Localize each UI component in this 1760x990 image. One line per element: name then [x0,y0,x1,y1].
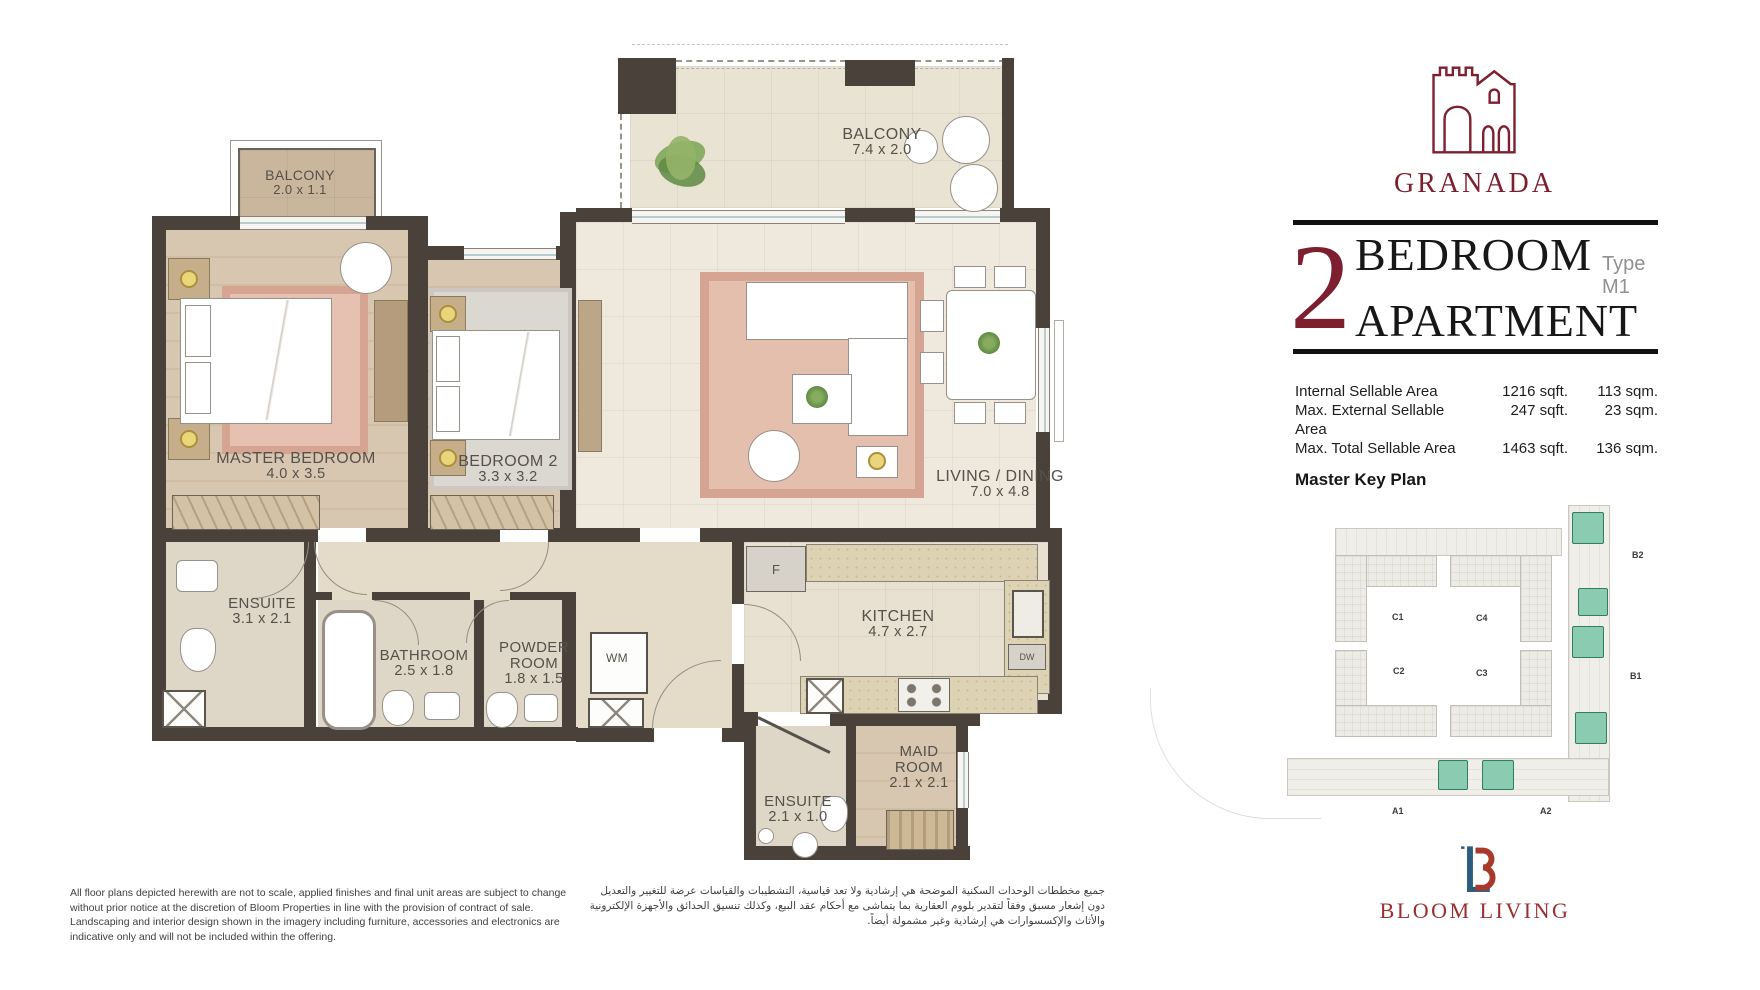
room-label-bathroom: BATHROOM 2.5 x 1.8 [344,648,504,680]
plant [978,332,1000,354]
kp-label-a2: A2 [1540,806,1552,816]
wall [576,728,654,742]
dining-chair [994,402,1026,424]
sofa-corner [848,338,908,436]
dishwasher-label: DW [1020,652,1035,662]
wall [510,592,576,600]
toilet [382,690,414,726]
kp-label-c3: C3 [1476,668,1488,678]
room-label-living-balcony: BALCONY 7.4 x 2.0 [792,126,972,159]
armchair [340,242,392,294]
bloom-monogram-icon [1452,843,1504,897]
balcony-rail [676,60,846,69]
kp-label-b1: B1 [1630,671,1642,681]
balcony-rail [620,114,628,208]
sink [424,692,460,720]
area-row: Max. Total Sellable Area 1463 sqft. 136 … [1295,439,1658,458]
kp-label-a1: A1 [1392,806,1404,816]
bed-throw [258,300,298,420]
bed-throw [500,332,540,436]
kp-label-c1: C1 [1392,612,1404,622]
dishwasher: DW [1008,644,1046,670]
kp-label-c4: C4 [1476,613,1488,623]
maid-bed [886,810,954,850]
shaft [588,698,644,728]
wall [744,726,756,858]
wall [846,726,856,852]
toilet [486,692,518,728]
bedroom2-window [464,248,556,260]
lamp [868,452,886,470]
dining-chair [954,402,986,424]
wall [152,216,240,230]
area-row: Internal Sellable Area 1216 sqft. 113 sq… [1295,382,1658,401]
dining-chair [994,266,1026,288]
area-row: Max. External Sellable Area 247 sqft. 23… [1295,401,1658,439]
balcony-pillar [1002,58,1014,212]
room-label-maid-ensuite: ENSUITE 2.1 x 1.0 [748,794,848,826]
dining-chair [920,300,944,332]
toilet [180,628,216,672]
kp-highlight-unit [1575,712,1607,744]
kp-highlight-unit [1572,626,1604,658]
wall [744,712,758,726]
key-plan: C1 C4 C2 C3 B2 B1 A1 A2 [1140,498,1760,828]
floor-plan: WM F DW BALCONY 2.0 x 1.1 BALCONY 7.4 x … [0,0,1140,990]
granada-logo [1428,60,1520,160]
dining-chair [954,266,986,288]
wall [1036,208,1050,328]
kp-building-c2 [1335,705,1437,737]
wall [548,528,560,542]
disclaimer-arabic: جميع مخططات الوحدات السكنية الموضحة هي إ… [588,884,1105,929]
wall [732,542,744,604]
fridge: F [746,546,806,592]
wall [700,528,732,542]
unit-title-line1: BEDROOM [1355,233,1592,277]
maid-window [957,752,969,808]
plant [806,386,828,408]
shower [162,690,206,728]
key-plan-title: Master Key Plan [1295,470,1426,490]
shower-drain [758,828,774,844]
master-wardrobe [374,300,408,422]
unit-type: Type M1 [1602,253,1658,299]
room-label-ensuite: ENSUITE 3.1 x 2.1 [182,596,342,628]
pillow [436,386,460,432]
unit-number: 2 [1290,237,1351,339]
stove [898,678,950,712]
pillow [436,336,460,382]
wardrobe-closet [172,495,320,530]
balcony-rail [915,60,1005,69]
brand-name: BLOOM LIVING [1315,898,1635,924]
lamp [180,430,198,448]
kp-building-c3 [1450,705,1552,737]
project-name: GRANADA [1293,168,1656,200]
road-curve [1150,688,1321,819]
kp-label-c2: C2 [1393,666,1405,676]
wall [732,664,744,728]
shaft [806,678,844,714]
unit-heading: 2 BEDROOM Type M1 APARTMENT [1290,232,1658,344]
kp-highlight-unit [1438,760,1468,790]
wall [372,592,470,600]
room-label-living-dining: LIVING / DINING 7.0 x 4.8 [890,468,1110,501]
room-label-master-bedroom: MASTER BEDROOM 4.0 x 3.5 [186,450,406,483]
wall [152,216,166,741]
room-label-kitchen: KITCHEN 4.7 x 2.7 [808,608,988,641]
wm-label: WM [590,652,644,665]
kp-label-b2: B2 [1632,550,1644,560]
area-table: Internal Sellable Area 1216 sqft. 113 sq… [1295,382,1658,458]
room-label-bedroom2: BEDROOM 2 3.3 x 3.2 [418,453,598,486]
tv-console [578,300,602,452]
sink [176,560,218,592]
wall [428,246,464,260]
wall [428,528,500,542]
balcony-sliding-door [632,210,845,224]
kp-highlight-unit [1578,588,1608,616]
sink [792,832,818,858]
wall [366,528,428,542]
info-panel: GRANADA 2 BEDROOM Type M1 APARTMENT Inte… [1140,0,1760,990]
balcony-pillar [618,58,676,114]
living-window [1038,328,1050,432]
castle-icon [1428,60,1520,160]
divider [1293,349,1658,354]
dimension-line [632,44,1008,47]
balcony-pillar [845,60,915,86]
wall [304,542,316,727]
sofa [746,282,908,340]
wall [845,208,915,222]
floorplan-sheet: { "plan": { "rooms": [ {"name": "BALCONY… [0,0,1760,990]
fridge-label: F [772,562,780,577]
kp-highlight-unit [1572,512,1604,544]
dining-chair [920,352,944,384]
kp-building-c1 [1335,555,1367,642]
wardrobe-closet [430,495,554,530]
wall [576,208,632,222]
wall [732,528,1062,542]
window-ledge [1054,320,1064,442]
master-balcony-window [240,216,366,230]
kitchen-counter [806,544,1038,582]
kp-highlight-unit [1482,760,1514,790]
bloom-logo [1452,843,1504,897]
unit-title-line2: APARTMENT [1355,295,1638,346]
wall [366,216,428,230]
balcony-sliding-door [915,210,1000,224]
sink [524,694,558,722]
pillow [185,305,211,357]
room-label-master-balcony: BALCONY 2.0 x 1.1 [230,168,370,197]
kp-building [1335,528,1562,556]
wall [560,528,640,542]
room-label-maid-room: MAID ROOM 2.1 x 2.1 [880,744,958,792]
wall [152,528,318,542]
disclaimer-english: All floor plans depicted herewith are no… [70,886,575,944]
room-label-powder-room: POWDER ROOM 1.8 x 1.5 [482,640,586,688]
balcony-chair [950,164,998,212]
kp-building-c4 [1520,555,1552,642]
kitchen-sink [1012,590,1044,638]
armchair [748,430,800,482]
pillow [185,362,211,414]
palm-plant [650,134,710,198]
wall [1048,542,1062,708]
lamp [180,270,198,288]
lamp [439,305,457,323]
